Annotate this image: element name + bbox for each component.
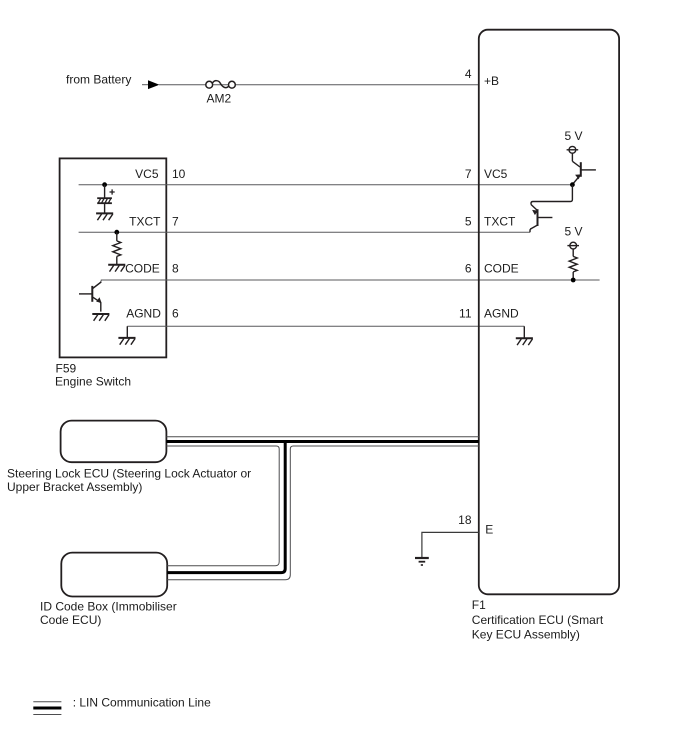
svg-text:7: 7: [172, 215, 179, 229]
svg-text:6: 6: [465, 262, 472, 276]
svg-text:11: 11: [459, 307, 472, 321]
svg-text:CODE: CODE: [125, 262, 160, 276]
svg-text:Upper Bracket Assembly): Upper Bracket Assembly): [7, 480, 142, 494]
svg-text:Code ECU): Code ECU): [40, 613, 101, 627]
svg-text:TXCT: TXCT: [484, 215, 516, 229]
svg-text:5 V: 5 V: [565, 225, 583, 239]
svg-text:Engine Switch: Engine Switch: [55, 375, 131, 389]
svg-text:7: 7: [465, 167, 472, 181]
svg-text:18: 18: [458, 513, 472, 527]
svg-text:TXCT: TXCT: [129, 215, 161, 229]
svg-text:VC5: VC5: [484, 167, 508, 181]
svg-text:Key ECU Assembly): Key ECU Assembly): [472, 628, 580, 642]
svg-text:CODE: CODE: [484, 262, 519, 276]
svg-text:E: E: [485, 522, 493, 536]
svg-text:F59: F59: [56, 361, 77, 375]
svg-text:from Battery: from Battery: [66, 73, 131, 87]
svg-text:5 V: 5 V: [565, 129, 583, 143]
svg-text:F1: F1: [472, 598, 486, 612]
svg-text:8: 8: [172, 262, 179, 276]
svg-text:+B: +B: [484, 74, 499, 88]
svg-text:AGND: AGND: [126, 307, 161, 321]
svg-text:Steering Lock ECU (Steering Lo: Steering Lock ECU (Steering Lock Actuato…: [7, 466, 251, 480]
svg-text:: LIN Communication Line: : LIN Communication Line: [73, 696, 211, 710]
svg-text:AGND: AGND: [484, 307, 519, 321]
svg-text:6: 6: [172, 307, 179, 321]
svg-text:4: 4: [465, 67, 472, 81]
svg-text:AM2: AM2: [207, 92, 232, 106]
svg-text:VC5: VC5: [135, 167, 159, 181]
svg-text:ID Code Box (Immobiliser: ID Code Box (Immobiliser: [40, 600, 177, 614]
svg-text:Certification ECU (Smart: Certification ECU (Smart: [472, 613, 604, 627]
svg-text:10: 10: [172, 167, 186, 181]
svg-text:5: 5: [465, 215, 472, 229]
